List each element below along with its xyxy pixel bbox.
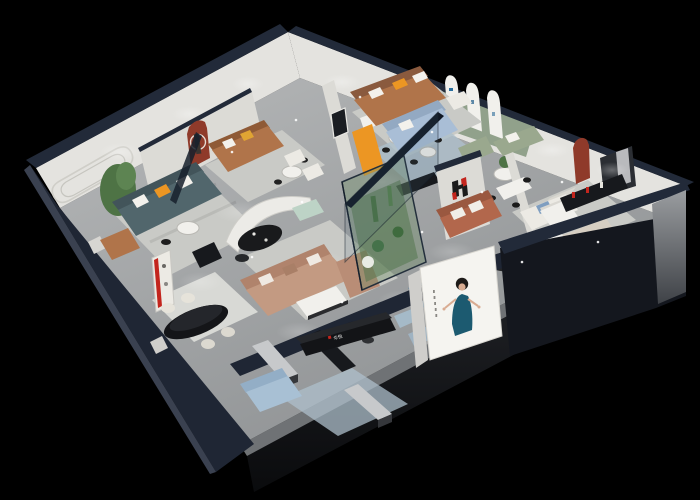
showroom-render: 华悦 华悦 xyxy=(0,0,700,500)
arch-display-text-2 xyxy=(492,112,495,116)
tabletop-decor xyxy=(264,238,267,241)
black-stool xyxy=(235,254,249,262)
display-shelf xyxy=(152,250,174,312)
agave-plant xyxy=(372,240,384,252)
red-book xyxy=(572,192,575,198)
cream-chair xyxy=(201,339,215,349)
white-hydrangea xyxy=(362,256,374,268)
round-table xyxy=(282,166,302,178)
cream-chair xyxy=(221,327,235,337)
wire-chair xyxy=(382,147,390,152)
round-cactus xyxy=(393,227,404,238)
model-hand xyxy=(478,306,481,309)
black-chair xyxy=(274,179,282,184)
plant-foliage xyxy=(116,162,136,190)
black-chair xyxy=(161,239,171,245)
red-arch-niche-right xyxy=(573,138,590,184)
render-canvas: 华悦 华悦 xyxy=(0,0,700,500)
black-chair xyxy=(512,202,520,207)
model-face xyxy=(458,283,465,290)
tabletop-decor xyxy=(252,232,255,235)
corner-column xyxy=(652,190,686,304)
cream-chair xyxy=(181,293,195,303)
white-dish xyxy=(600,182,603,188)
cream-chair xyxy=(161,303,175,313)
shelf-decor xyxy=(164,282,168,286)
arch-display-text xyxy=(471,100,474,104)
shelf-decor xyxy=(162,264,166,268)
black-chair xyxy=(523,177,531,182)
arch-display-logo xyxy=(449,88,453,91)
wall-display-window xyxy=(331,108,348,138)
red-book xyxy=(586,187,589,193)
round-coffee-table xyxy=(177,222,199,235)
model-hand xyxy=(443,308,446,311)
